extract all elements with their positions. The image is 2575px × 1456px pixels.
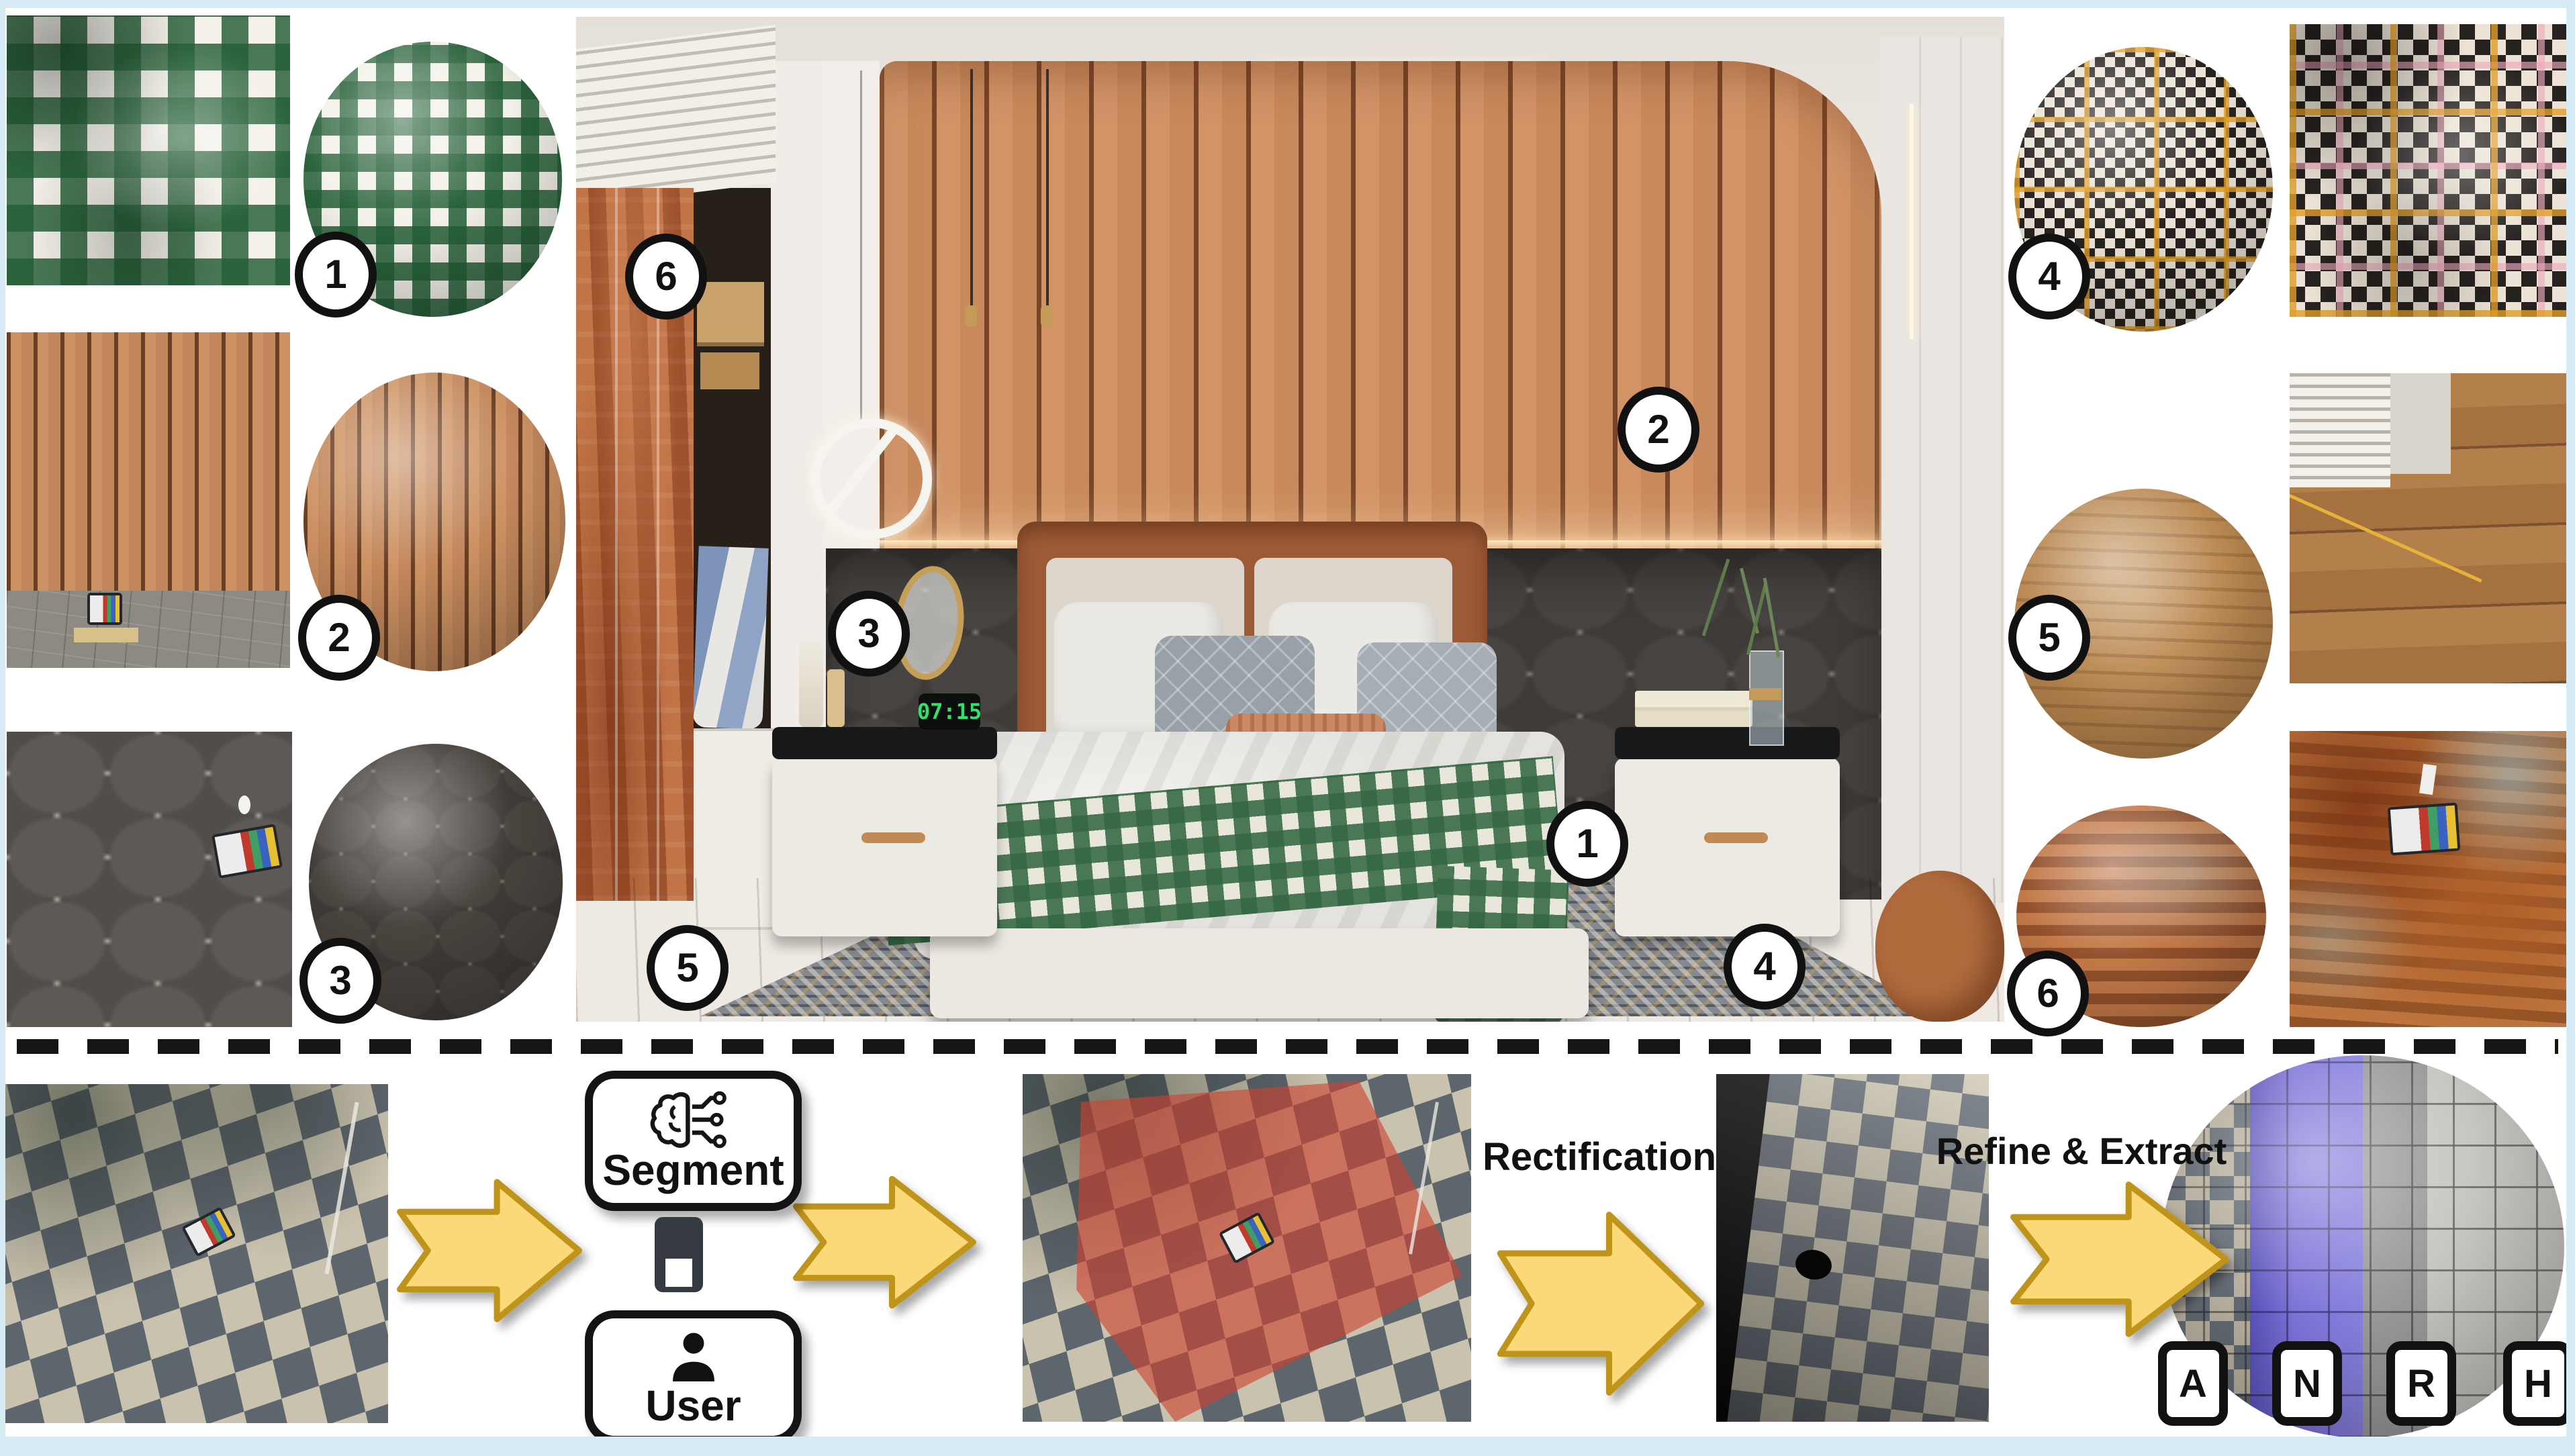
pavement-strip — [7, 591, 290, 668]
marker-number: 3 — [857, 614, 880, 654]
photo-rusty-metal — [2290, 731, 2566, 1027]
arrow-right-icon — [792, 1173, 977, 1311]
right-column-marker-4: 4 — [2008, 234, 2090, 320]
scene-marker-4: 4 — [1724, 924, 1806, 1010]
ring-lamp — [811, 418, 932, 539]
marker-number: 6 — [2036, 973, 2059, 1014]
panel-seam — [615, 188, 618, 901]
slatted-vent-panel — [576, 25, 776, 207]
marker-number: 1 — [324, 254, 346, 295]
lamp-cord — [860, 70, 862, 420]
segment-label: Segment — [602, 1149, 784, 1192]
scene-marker-6: 6 — [625, 234, 707, 320]
photo-wood-slat-wall — [7, 332, 290, 668]
user-box: User — [585, 1310, 802, 1444]
scene-marker-1: 1 — [1546, 801, 1628, 887]
perfume-bottle — [827, 669, 845, 727]
figure-page: { "figure": { "markers": ["1","2","3","4… — [0, 0, 2575, 1456]
map-chip-roughness: R — [2386, 1341, 2456, 1426]
marker-number: 1 — [1576, 824, 1598, 864]
color-checker-card — [87, 593, 122, 625]
frame-left — [0, 0, 5, 1456]
pipeline-segmented-image — [1023, 1074, 1471, 1422]
rectification-label: Rectification — [1483, 1134, 1711, 1179]
arrow-right-icon — [396, 1176, 583, 1325]
map-letter: A — [2179, 1361, 2207, 1406]
door-frame — [2390, 373, 2451, 474]
clock-time: 07:15 — [917, 699, 982, 724]
vase-gold-band — [1749, 688, 1781, 700]
leather-pouf — [1875, 871, 2004, 1022]
pendant-lamp — [965, 305, 977, 327]
dashed-divider — [17, 1039, 2558, 1054]
yellow-cable — [2290, 489, 2482, 583]
brain-circuit-icon — [643, 1091, 744, 1149]
marker-number: 6 — [655, 256, 677, 297]
marker-number: 4 — [2038, 256, 2060, 297]
nightstand-right-top — [1615, 727, 1840, 759]
closet-box — [700, 352, 759, 389]
nightstand-left-top — [772, 727, 997, 759]
right-column-marker-6: 6 — [2007, 951, 2089, 1036]
hanging-jacket — [692, 546, 768, 729]
photo-gingham-fabric — [7, 15, 290, 285]
calibration-mat — [74, 628, 138, 642]
map-letter: R — [2407, 1361, 2435, 1406]
led-strip-vertical — [1910, 104, 1914, 339]
photo-cobblestone — [7, 732, 292, 1027]
nightstand-left — [772, 758, 997, 936]
frame-right — [2566, 0, 2575, 1456]
arrow-right-icon — [1496, 1207, 1705, 1400]
color-checker-card — [2388, 802, 2461, 855]
lighting-overlay — [1716, 1074, 1989, 1422]
bed-base — [930, 928, 1589, 1018]
fabric-fold-shading — [2290, 24, 2566, 317]
marker-number: 2 — [328, 618, 350, 658]
white-tag — [2419, 764, 2437, 795]
arrow-right-icon — [2009, 1178, 2231, 1341]
perfume-bottle — [799, 641, 823, 727]
drawer-handle — [1704, 832, 1768, 843]
person-icon — [657, 1328, 731, 1384]
scene-marker-5: 5 — [647, 925, 729, 1011]
pipeline-rectified-image — [1716, 1074, 1989, 1422]
wood-slat-wall — [880, 61, 1881, 548]
pendant-cord — [970, 69, 973, 308]
photo-wood-floor — [2290, 373, 2566, 683]
marker-number: 5 — [2038, 618, 2060, 658]
photo-plaid-fabric — [2290, 24, 2566, 317]
closet-box — [697, 282, 764, 346]
map-chip-normal: N — [2272, 1341, 2342, 1426]
toggle-switch-icon — [655, 1217, 703, 1292]
left-column-marker-3: 3 — [299, 938, 381, 1024]
scene-marker-2: 2 — [1618, 387, 1699, 473]
map-letter: N — [2293, 1361, 2321, 1406]
refine-extract-label: Refine & Extract — [1934, 1129, 2229, 1173]
toggle-knob — [665, 1259, 692, 1287]
pendant-lamp — [1041, 305, 1053, 327]
marker-number: 4 — [1753, 947, 1775, 987]
fabric-fold-shading — [7, 15, 290, 285]
marker-number: 2 — [1647, 409, 1669, 450]
pipeline-input-photo — [5, 1084, 388, 1423]
marker-number: 3 — [329, 961, 351, 1001]
scene-marker-3: 3 — [828, 591, 910, 677]
left-column-marker-2: 2 — [298, 595, 380, 681]
right-column-marker-5: 5 — [2008, 595, 2090, 681]
user-label: User — [645, 1384, 741, 1427]
drawer-handle — [861, 832, 925, 843]
earbud-object — [238, 795, 250, 814]
segment-box: Segment — [585, 1071, 802, 1211]
map-letter: H — [2524, 1361, 2552, 1406]
wood-slat-texture — [7, 332, 290, 591]
bedroom-scene: 07:15 — [576, 17, 2004, 1022]
digital-clock: 07:15 — [919, 693, 980, 730]
book-stack — [1635, 691, 1752, 727]
window-shutters — [2290, 373, 2390, 487]
marker-number: 5 — [676, 948, 698, 988]
map-chip-height: H — [2503, 1341, 2573, 1426]
frame-top — [0, 0, 2575, 8]
right-wardrobe — [1880, 37, 2004, 903]
frame-bottom — [0, 1437, 2575, 1456]
color-checker-card — [212, 824, 283, 879]
map-chip-albedo: A — [2158, 1341, 2228, 1426]
pendant-cord — [1046, 69, 1049, 308]
nightstand-right — [1615, 758, 1840, 936]
left-column-marker-1: 1 — [295, 232, 377, 318]
